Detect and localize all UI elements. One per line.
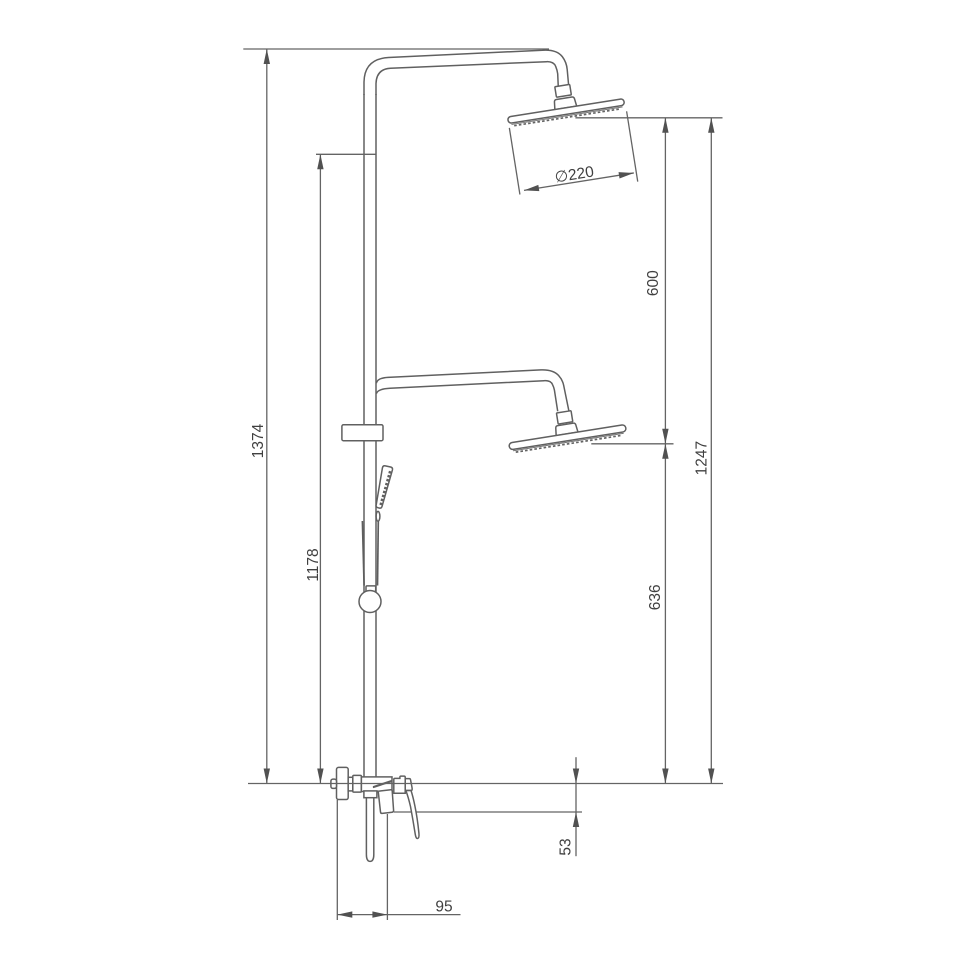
svg-text:1247: 1247 [693,441,710,475]
svg-text:∅220: ∅220 [554,163,596,186]
svg-text:1374: 1374 [250,423,267,458]
svg-text:600: 600 [645,270,662,296]
svg-text:95: 95 [435,899,452,916]
svg-text:53: 53 [557,838,574,855]
svg-text:636: 636 [647,584,664,610]
svg-text:1178: 1178 [305,548,322,581]
